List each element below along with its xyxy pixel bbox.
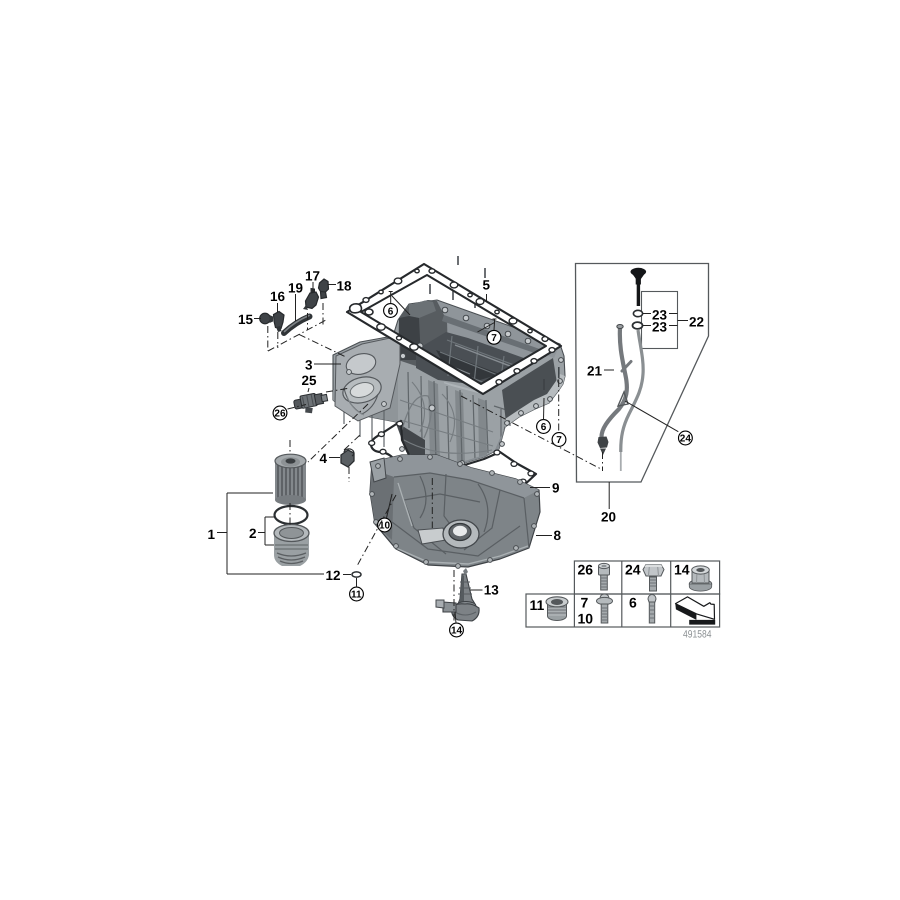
svg-text:7: 7 <box>556 435 562 446</box>
svg-text:10: 10 <box>578 611 594 627</box>
svg-text:18: 18 <box>337 279 353 294</box>
svg-text:26: 26 <box>274 409 286 420</box>
svg-text:6: 6 <box>629 595 637 611</box>
svg-text:20: 20 <box>601 510 616 525</box>
svg-text:12: 12 <box>326 568 341 583</box>
svg-text:6: 6 <box>388 306 394 317</box>
svg-text:2: 2 <box>249 526 257 541</box>
svg-text:19: 19 <box>288 281 303 296</box>
svg-text:23: 23 <box>652 320 668 335</box>
svg-text:24: 24 <box>625 562 641 578</box>
svg-text:491584: 491584 <box>683 629 712 641</box>
svg-text:7: 7 <box>491 333 497 344</box>
svg-text:11: 11 <box>351 590 362 601</box>
svg-text:16: 16 <box>270 289 286 304</box>
svg-text:13: 13 <box>484 583 500 598</box>
svg-text:26: 26 <box>578 562 594 578</box>
svg-text:9: 9 <box>552 481 560 496</box>
svg-text:14: 14 <box>451 626 463 637</box>
svg-text:3: 3 <box>305 358 313 373</box>
svg-text:11: 11 <box>530 597 545 613</box>
svg-text:4: 4 <box>320 451 328 466</box>
svg-text:5: 5 <box>483 278 491 293</box>
svg-text:8: 8 <box>554 528 562 543</box>
svg-text:25: 25 <box>302 373 318 388</box>
svg-text:1: 1 <box>208 527 216 542</box>
svg-text:15: 15 <box>238 312 254 327</box>
svg-text:14: 14 <box>674 562 690 578</box>
svg-text:21: 21 <box>587 364 603 379</box>
svg-text:17: 17 <box>305 269 320 284</box>
svg-text:22: 22 <box>689 315 704 330</box>
svg-text:6: 6 <box>541 422 547 433</box>
svg-text:7: 7 <box>581 595 589 611</box>
svg-text:24: 24 <box>680 434 692 445</box>
